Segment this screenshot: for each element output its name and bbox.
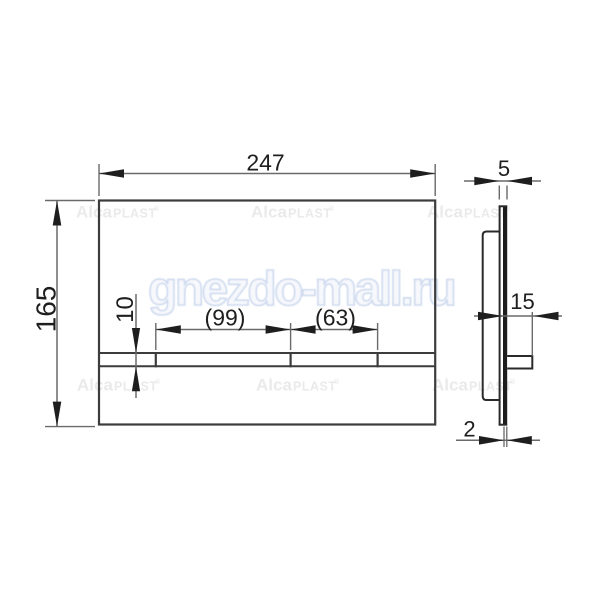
svg-text:®: ® [334, 378, 340, 386]
svg-text:5: 5 [498, 156, 510, 181]
svg-text:®: ® [154, 205, 160, 213]
svg-text:165: 165 [31, 286, 62, 333]
svg-text:®: ® [329, 205, 335, 213]
svg-text:2: 2 [463, 417, 475, 442]
svg-text:(99): (99) [205, 305, 246, 331]
svg-text:247: 247 [246, 150, 284, 176]
svg-text:®: ® [510, 378, 516, 386]
svg-text:15: 15 [510, 289, 534, 314]
svg-text:(63): (63) [315, 305, 356, 331]
svg-text:Alca: Alca [76, 203, 112, 222]
svg-text:®: ® [155, 378, 161, 386]
svg-text:PLAST: PLAST [113, 207, 156, 221]
svg-text:gnezdo-mall.ru: gnezdo-mall.ru [148, 263, 455, 316]
svg-text:PLAST: PLAST [464, 207, 507, 221]
svg-text:PLAST: PLAST [288, 207, 331, 221]
svg-text:Alca: Alca [432, 376, 468, 395]
svg-text:Alca: Alca [77, 376, 113, 395]
svg-text:10: 10 [112, 296, 139, 323]
svg-text:Alca: Alca [256, 376, 292, 395]
svg-text:Alca: Alca [427, 203, 463, 222]
svg-text:Alca: Alca [251, 203, 287, 222]
svg-text:PLAST: PLAST [293, 380, 336, 394]
